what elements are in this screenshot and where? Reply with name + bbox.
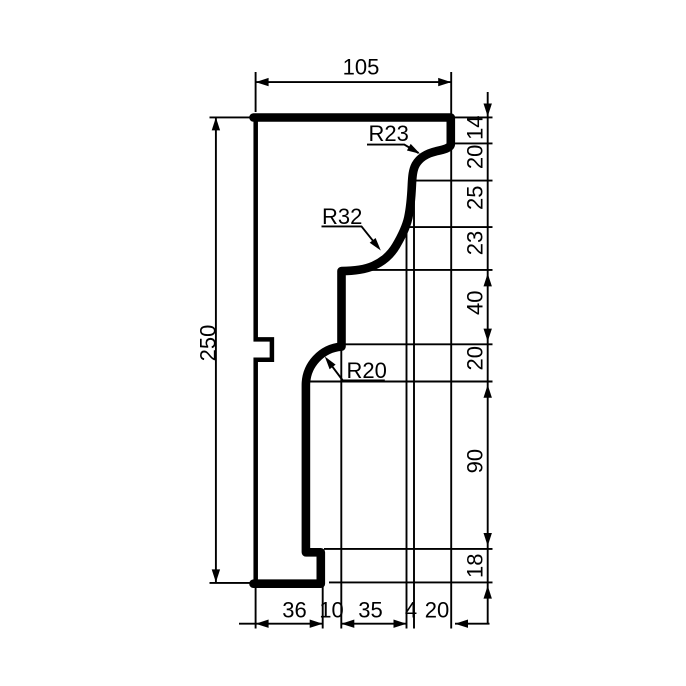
svg-text:20: 20 [462, 346, 487, 370]
svg-text:R20: R20 [347, 358, 387, 383]
svg-text:35: 35 [358, 598, 382, 623]
svg-text:105: 105 [343, 55, 380, 80]
svg-text:250: 250 [195, 325, 220, 362]
svg-text:36: 36 [282, 598, 306, 623]
svg-text:23: 23 [462, 231, 487, 255]
svg-text:20: 20 [462, 145, 487, 169]
svg-text:40: 40 [462, 291, 487, 315]
svg-text:10: 10 [319, 598, 343, 623]
svg-text:90: 90 [462, 449, 487, 473]
svg-text:18: 18 [462, 554, 487, 578]
svg-text:25: 25 [462, 186, 487, 210]
svg-text:14: 14 [462, 115, 487, 139]
svg-text:R32: R32 [322, 204, 362, 229]
svg-text:R23: R23 [369, 121, 409, 146]
svg-text:20: 20 [425, 598, 449, 623]
svg-text:4: 4 [405, 598, 417, 623]
